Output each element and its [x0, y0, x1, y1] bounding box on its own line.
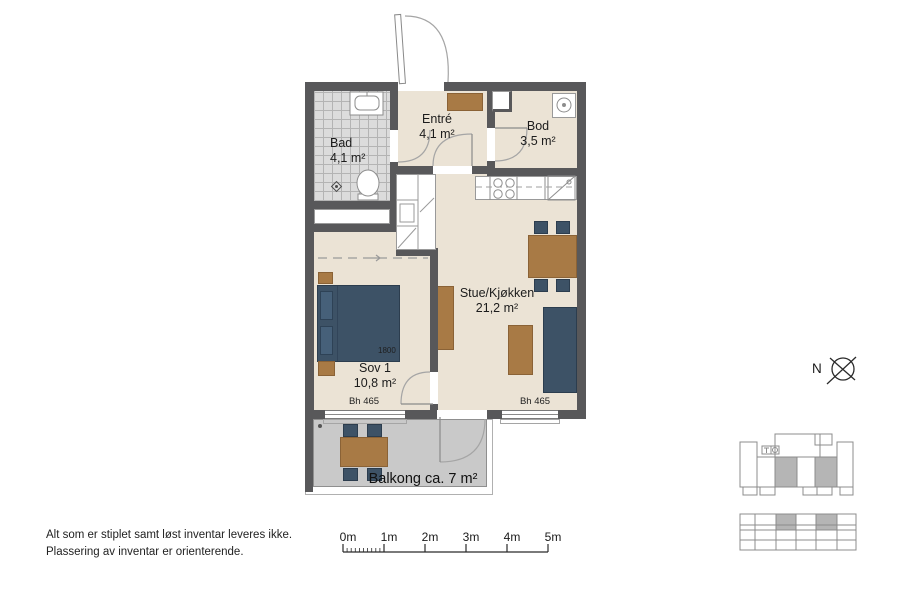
bedroom-door-opening: [430, 372, 438, 404]
balcony-door-opening: [437, 410, 487, 419]
floorplan-page: Bad 4,1 m² Entré 4,1 m² Bod 3,5 m² Stue/…: [0, 0, 900, 600]
room-area: 4,1 m²: [419, 127, 454, 142]
room-label-entre: Entré 4,1 m²: [419, 112, 454, 142]
dining-chair: [556, 221, 570, 234]
note-line1: Alt som er stiplet samt løst inventar le…: [46, 529, 292, 541]
scale-label: 0m: [340, 530, 357, 544]
wall-bedroom-top: [314, 224, 398, 232]
room-label-bod: Bod 3,5 m²: [520, 119, 555, 149]
room-area: 3,5 m²: [520, 134, 555, 149]
room-name: Sov 1: [354, 361, 396, 376]
compass-icon: [827, 357, 856, 384]
scale-label: 3m: [463, 530, 480, 544]
wall-right: [577, 82, 586, 419]
scale-label: 1m: [381, 530, 398, 544]
balcony-chair: [343, 468, 358, 481]
coffee-table: [508, 325, 533, 375]
room-area: 4,1 m²: [330, 151, 365, 166]
wardrobe-niche: [314, 209, 390, 224]
scale-label: 4m: [504, 530, 521, 544]
water-heater: [552, 93, 576, 118]
entrance-door-leaf: [394, 14, 406, 84]
dining-table: [528, 235, 577, 278]
nightstand: [318, 361, 335, 376]
bod-door-opening: [487, 128, 495, 161]
window-height-label-left: Bh 465: [349, 396, 379, 407]
room-label-bad: Bad 4,1 m²: [330, 136, 365, 166]
tall-cabinet-block: [396, 174, 436, 250]
balcony-table: [340, 437, 388, 467]
room-area: 21,2 m²: [460, 301, 534, 316]
bedroom-window: [325, 410, 405, 419]
room-name: Bod: [520, 119, 555, 134]
scale-label: 5m: [545, 530, 562, 544]
compass-label: N: [812, 361, 822, 376]
balcony-label: Balkong ca. 7 m²: [369, 471, 478, 487]
living-window-sill: [500, 419, 560, 424]
living-window: [502, 410, 558, 419]
bed-fold-line: [337, 286, 338, 361]
room-name: Entré: [419, 112, 454, 127]
bed-pillow: [320, 326, 333, 355]
note-line2: Plassering av inventar er orienterende.: [46, 546, 244, 558]
bad-door-opening: [390, 130, 398, 162]
wall-left: [305, 82, 314, 419]
wall-bottom: [558, 410, 586, 419]
entrance-door-arc: [405, 16, 448, 82]
wall-bottom: [487, 410, 502, 419]
wall-bod-left: [487, 161, 495, 168]
nightstand: [318, 272, 333, 284]
bedroom-window-sill: [323, 419, 407, 424]
dining-chair: [534, 279, 548, 292]
wall-bad-right: [390, 91, 398, 130]
room-name: Bad: [330, 136, 365, 151]
scale-bar: [343, 544, 548, 552]
kitchen-counter: [475, 176, 577, 200]
room-label-sov1: Sov 1 10,8 m²: [354, 361, 396, 391]
wall-entre-bottom: [390, 166, 433, 174]
bed-pillow: [320, 291, 333, 320]
room-area: 10,8 m²: [354, 376, 396, 391]
bed-width-dimension: 1800: [378, 346, 396, 355]
window-height-label-right: Bh 465: [520, 396, 550, 407]
wall-top: [305, 82, 398, 91]
wall-bedroom-right: [430, 248, 438, 372]
balcony-drain-dot: [318, 424, 322, 428]
stue-door-opening: [433, 166, 472, 174]
tv-bench: [437, 286, 454, 350]
bod-shaft: [492, 91, 512, 112]
balcony-chair: [343, 424, 358, 437]
wall-bad-bottom: [314, 201, 398, 209]
wall-bottom: [305, 410, 325, 419]
room-label-stue: Stue/Kjøkken 21,2 m²: [460, 286, 534, 316]
sofa: [543, 307, 577, 393]
room-name: Stue/Kjøkken: [460, 286, 534, 301]
balcony-chair: [367, 424, 382, 437]
mini-facade: [740, 514, 856, 550]
dining-chair: [534, 221, 548, 234]
entry-wardrobe: [447, 93, 483, 111]
mini-floorplan: [740, 434, 853, 495]
wall-top: [444, 82, 586, 91]
balcony-left-wall: [305, 419, 313, 492]
dining-chair: [556, 279, 570, 292]
scale-label: 2m: [422, 530, 439, 544]
wall-bod-bottom: [487, 168, 586, 176]
